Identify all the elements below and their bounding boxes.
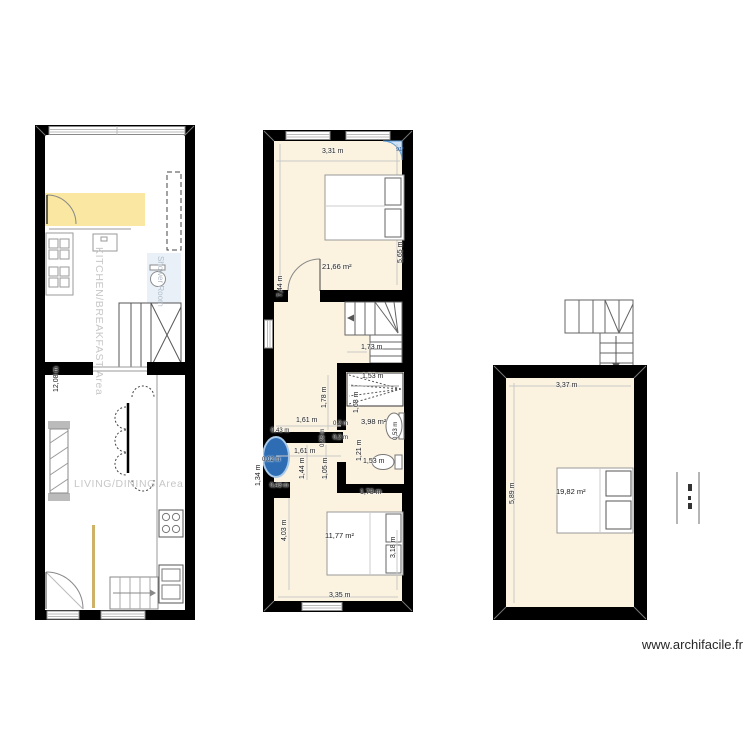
window-bottom-left [47,611,79,619]
area-topfloor: 19,82 m² [556,488,586,496]
stairs-basement [110,577,158,609]
area-bathroom: 3,98 m² [361,418,386,426]
dim-144: 1,44 m [299,458,307,479]
dim-043a: 0,43 m [271,427,289,435]
dim-161a: 1,61 m [296,417,317,425]
fireplace [48,421,70,501]
dim-bedroom1-right: 5,65 m [397,242,405,263]
partition-strip [92,525,95,608]
dim-bath-sink: 0,53 m [392,422,400,440]
site-watermark: www.archifacile.fr [628,637,743,652]
dim-topfloor-width: 3,37 m [556,382,577,390]
bed-top-floor [557,468,633,533]
dim-043b: 0,43 m [270,482,288,490]
stairs-ground [119,303,181,367]
dim-178: 1,78 m [321,387,329,408]
window-top [49,127,185,135]
area-bedroom2: 11,77 m² [325,532,354,540]
dim-161b: 1,61 m [294,448,315,456]
area-bedroom1: 21,66 m² [322,263,352,271]
dim-ground-height: 12,08 m [53,367,61,392]
dim-bath-height-top: 1,68 m [353,392,361,413]
floor-plan-canvas: KITCHEN/BREAKFAST Area Shower Room LIVIN… [0,0,750,750]
dim-topfloor-height: 5,89 m [509,483,517,504]
bed-bedroom1 [325,175,404,240]
wall-bedroom1-bottom [263,290,413,302]
living-area-label: LIVING/DINING Area [74,478,183,490]
dim-028: 0,28 m [319,429,327,447]
corner-angle-label: 91° [396,147,404,153]
dim-02a: 0,2 m [333,420,348,428]
top-floor-plan [493,298,655,622]
window-bedroom1-right [346,132,390,140]
dim-bedroom2-top: 1,73 m [360,489,381,497]
dim-shower-width: 1,53 m [362,373,383,381]
window-bedroom1-left [286,132,330,140]
dim-bedroom2-bottom: 3,35 m [329,592,350,600]
dim-bedroom2-left: 4,03 m [281,520,289,541]
dim-134: 1,34 m [255,465,263,486]
stairs-top-floor [565,300,633,372]
window-bedroom2 [302,603,342,611]
appliances-left [46,233,73,295]
dim-bedroom2-right: 3,18 m [390,537,398,558]
dim-105: 1,05 m [322,458,330,479]
mini-annotation-box [676,472,700,524]
dim-bedroom1-width: 3,31 m [322,148,343,156]
dim-bedroom1-left: 7,44 m [277,276,285,297]
dim-stair-width: 1,73 m [361,344,382,352]
dim-02b: 0,2 m [333,434,348,442]
dim-wc-width: 1,53 m [363,458,384,466]
window-landing-left [265,320,273,348]
bathroom [337,363,413,493]
dim-002: 0,02 m [262,456,280,464]
shower-room-label: Shower Room [156,256,165,307]
tall-cupboard [167,172,181,250]
window-bottom-center [101,611,145,619]
kitchen-area-label: KITCHEN/BREAKFAST Area [93,247,105,395]
